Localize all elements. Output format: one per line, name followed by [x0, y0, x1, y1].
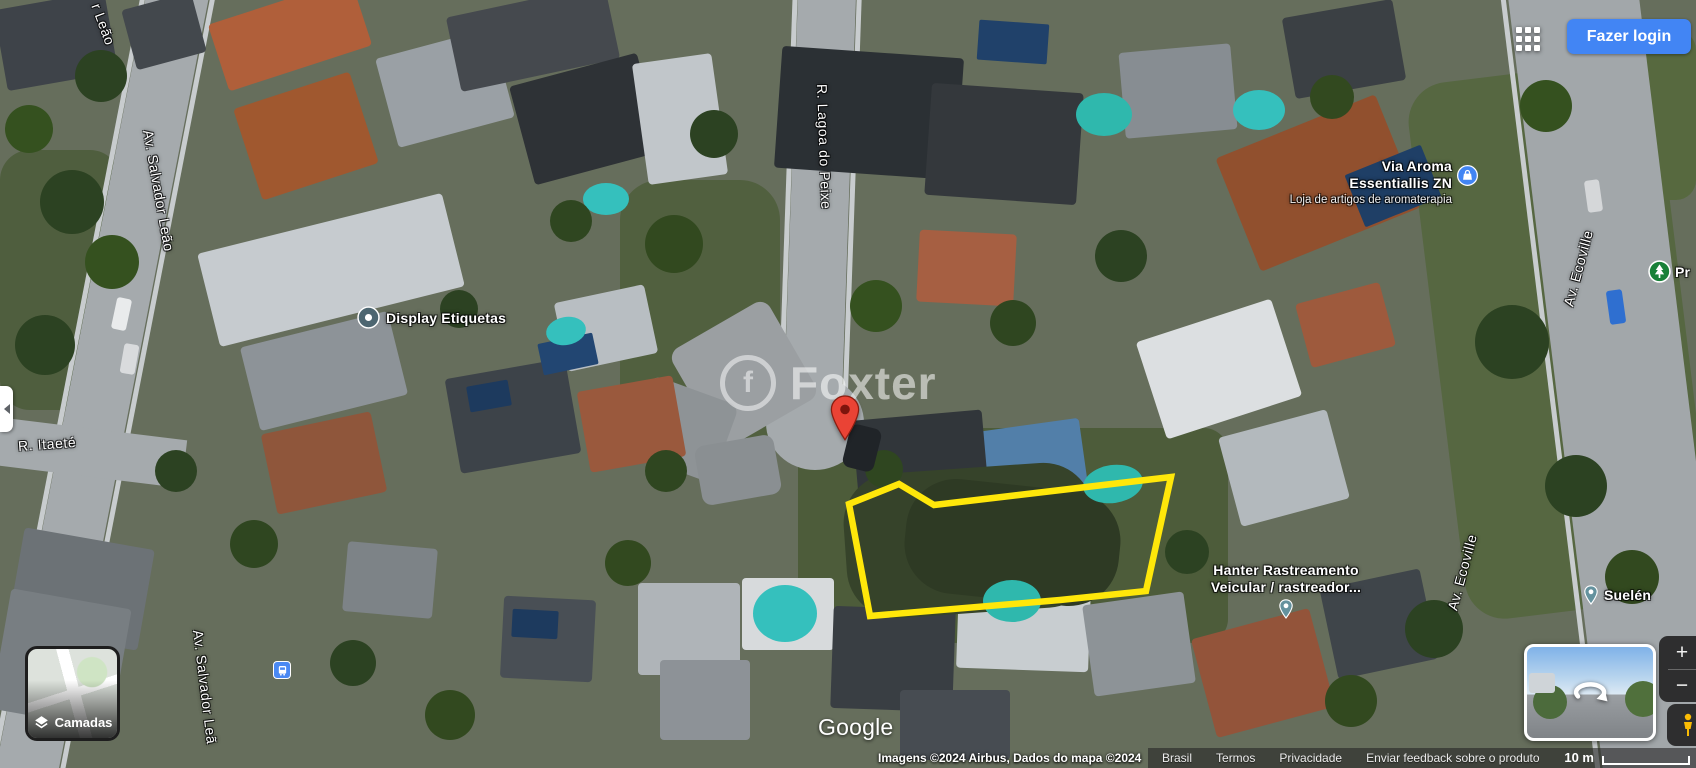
poi-label: Pr	[1675, 264, 1690, 280]
map-building	[660, 660, 750, 740]
map-tree	[645, 215, 703, 273]
map-building	[233, 71, 379, 200]
attribution-link-privacidade[interactable]: Privacidade	[1279, 751, 1342, 765]
map-scale: 10 m	[1564, 751, 1690, 765]
poi-display-etiquetas[interactable]: Display Etiquetas	[357, 306, 506, 329]
pegman-icon	[1678, 713, 1696, 737]
scale-label: 10 m	[1564, 751, 1594, 765]
map-tree	[425, 690, 475, 740]
map-pin-icon	[1279, 599, 1293, 619]
apps-grid-icon[interactable]	[1516, 27, 1540, 51]
poi-label-line1: Via Aroma	[1290, 158, 1452, 175]
layers-overlay: Camadas	[28, 649, 117, 738]
generic-poi-icon	[357, 306, 380, 329]
map-tree	[1545, 455, 1607, 517]
map-tree	[550, 200, 592, 242]
attribution-bar: Brasil Termos Privacidade Enviar feedbac…	[1148, 748, 1696, 768]
map-pin-icon	[1584, 585, 1598, 605]
map-pool	[583, 183, 629, 215]
shopping-bag-icon	[1457, 165, 1478, 191]
attribution-imagery: Imagens ©2024 Airbus, Dados do mapa ©202…	[878, 751, 1141, 765]
map-tree	[40, 170, 104, 234]
map-tree	[1475, 305, 1549, 379]
map-building	[342, 541, 438, 619]
poi-label-line2: Veicular / rastreador...	[1186, 579, 1386, 596]
map-tree	[1095, 230, 1147, 282]
bus-stop-icon[interactable]	[273, 661, 291, 679]
layers-label: Camadas	[55, 715, 113, 730]
sv-building	[1529, 673, 1555, 693]
map-building	[1218, 409, 1350, 527]
zoom-control: + −	[1659, 636, 1696, 702]
bus-glyph	[276, 664, 289, 677]
map-tree	[75, 50, 127, 102]
map-tree	[155, 450, 197, 492]
map-tree	[230, 520, 278, 568]
poi-label: Suelén	[1604, 587, 1651, 603]
map-pool	[983, 580, 1041, 622]
map-tree	[690, 110, 738, 158]
map-building	[1136, 299, 1303, 440]
layers-icon	[33, 714, 50, 731]
map-building	[261, 411, 388, 514]
map-tree	[645, 450, 687, 492]
map-building	[900, 690, 1010, 760]
chevron-left-icon	[4, 404, 10, 414]
map-building	[1295, 282, 1396, 368]
scale-bar	[1602, 756, 1690, 765]
poi-hanter-rastreamento[interactable]: Hanter Rastreamento Veicular / rastreado…	[1186, 562, 1386, 619]
street-view-thumbnail[interactable]	[1524, 644, 1656, 741]
map-tree	[15, 315, 75, 375]
map-tree	[5, 105, 53, 153]
poi-label: Display Etiquetas	[386, 310, 506, 326]
google-maps-satellite-view[interactable]: r Leão Av. Salvador Leão R. Itaeté R. La…	[0, 0, 1696, 768]
sv-tree-right	[1625, 681, 1656, 717]
attribution-link-brasil[interactable]: Brasil	[1162, 751, 1192, 765]
map-marker-red-pin[interactable]	[830, 395, 860, 441]
map-tree	[850, 280, 902, 332]
pegman-control[interactable]	[1667, 704, 1696, 746]
layers-control[interactable]: Camadas	[25, 646, 120, 741]
google-logo: Google	[818, 714, 893, 741]
map-driveway	[693, 434, 782, 507]
poi-via-aroma[interactable]: Via Aroma Essentiallis ZN Loja de artigo…	[1290, 158, 1452, 209]
rotate-arrow-icon	[1567, 675, 1613, 707]
side-panel-collapse-button[interactable]	[0, 386, 13, 432]
poi-label-line1: Hanter Rastreamento	[1186, 562, 1386, 579]
attribution-link-feedback[interactable]: Enviar feedback sobre o produto	[1366, 751, 1539, 765]
map-solar-panel	[977, 20, 1050, 65]
map-building	[445, 358, 582, 474]
map-tree	[605, 540, 651, 586]
login-button[interactable]: Fazer login	[1567, 19, 1691, 54]
map-pool	[753, 585, 817, 642]
zoom-in-button[interactable]: +	[1659, 636, 1696, 669]
map-pool	[1076, 93, 1132, 136]
poi-subtitle: Loja de artigos de aromaterapia	[1290, 192, 1452, 209]
poi-park[interactable]: Pr	[1648, 260, 1690, 283]
map-tree	[85, 235, 139, 289]
map-building	[1118, 43, 1237, 138]
map-building	[916, 230, 1017, 307]
map-tree	[990, 300, 1036, 346]
map-tree	[330, 640, 376, 686]
map-tree	[1520, 80, 1572, 132]
satellite-imagery-layer	[0, 0, 1696, 768]
map-pool	[1233, 90, 1285, 130]
map-building	[1082, 591, 1196, 696]
poi-suelen[interactable]: Suelén	[1584, 585, 1651, 605]
zoom-out-button[interactable]: −	[1659, 670, 1696, 703]
map-solar-panel	[511, 609, 558, 639]
map-tree	[1325, 675, 1377, 727]
tree-icon	[1648, 260, 1671, 283]
attribution-link-termos[interactable]: Termos	[1216, 751, 1255, 765]
map-tree	[1310, 75, 1354, 119]
map-building	[924, 83, 1083, 205]
poi-label-line2: Essentiallis ZN	[1290, 175, 1452, 192]
